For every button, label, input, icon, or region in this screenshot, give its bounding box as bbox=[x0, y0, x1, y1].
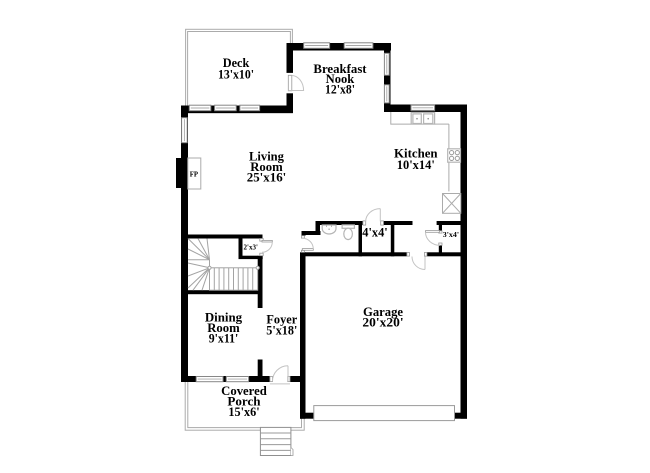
svg-text:10'x14': 10'x14' bbox=[397, 158, 435, 172]
svg-text:25'x16': 25'x16' bbox=[247, 170, 287, 184]
svg-text:9'x11': 9'x11' bbox=[209, 332, 239, 346]
svg-text:15'x6': 15'x6' bbox=[228, 405, 259, 419]
svg-text:4'x4': 4'x4' bbox=[362, 226, 387, 240]
svg-text:FP: FP bbox=[190, 170, 199, 179]
svg-text:12'x8': 12'x8' bbox=[325, 82, 355, 96]
svg-text:3'x4': 3'x4' bbox=[443, 230, 459, 239]
svg-text:20'x20': 20'x20' bbox=[362, 316, 403, 330]
svg-text:5'x18': 5'x18' bbox=[266, 324, 297, 338]
svg-text:13'x10': 13'x10' bbox=[218, 67, 254, 81]
svg-text:2'x3': 2'x3' bbox=[244, 243, 258, 252]
